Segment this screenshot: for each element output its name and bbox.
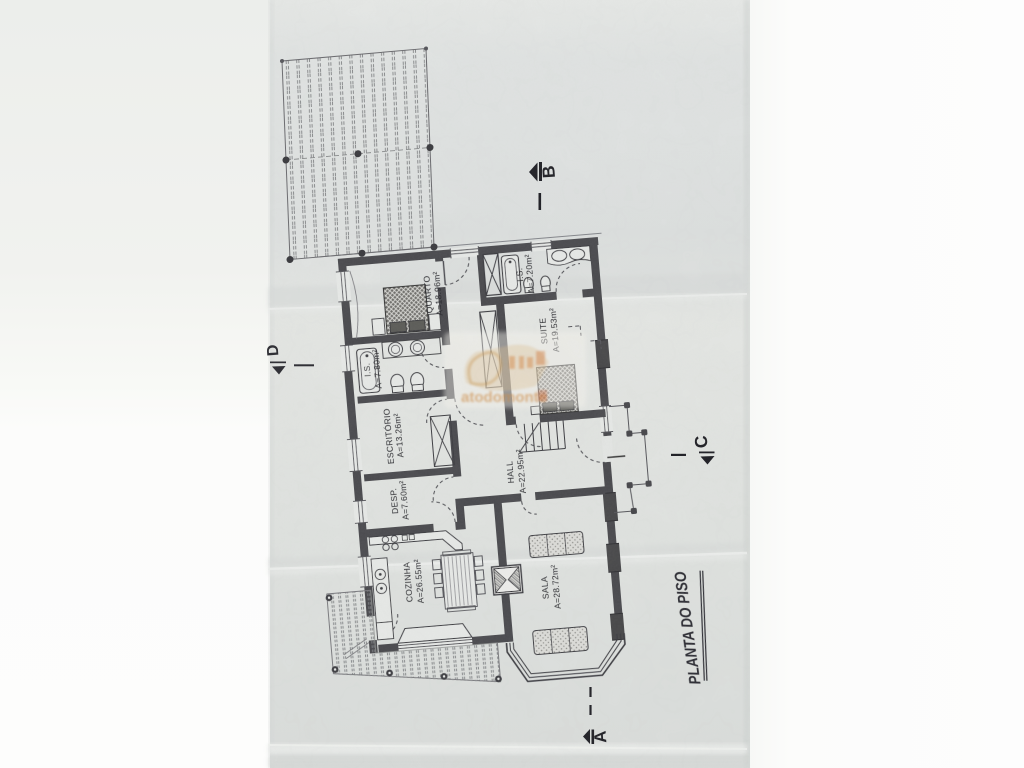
svg-text:atodomonte: atodomonte [461,390,547,406]
svg-text:SALA: SALA [539,576,551,600]
svg-text:B: B [538,165,559,179]
svg-text:C: C [691,435,712,449]
svg-text:D: D [265,344,283,357]
svg-text:A: A [591,730,611,744]
svg-text:HALL: HALL [504,461,516,484]
